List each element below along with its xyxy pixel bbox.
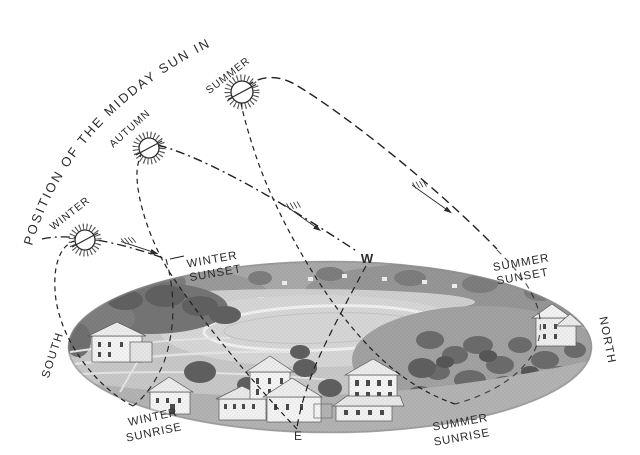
winter-sun-icon	[72, 227, 99, 254]
winter-sunset-leader	[170, 256, 184, 259]
winter-sunrise-label: WINTERSUNRISE	[122, 406, 183, 444]
motion-arrows	[121, 181, 452, 255]
compass-south-label: SOUTH	[40, 331, 66, 380]
summer-arc-setting	[236, 78, 497, 249]
engraving-page: POSITION OF THE MIDDAY SUN IN WINTER AUT…	[0, 0, 640, 455]
compass-east-label: E	[294, 429, 302, 443]
sun-position-diagram: POSITION OF THE MIDDAY SUN IN WINTER AUT…	[0, 0, 640, 455]
landscape-photo	[0, 0, 640, 455]
sun-icons	[72, 78, 257, 254]
winter-arc-setting	[42, 237, 166, 259]
compass-west-label: W	[361, 251, 374, 266]
autumn-sun-icon	[136, 135, 163, 162]
winter-sun-label: WINTER	[48, 194, 93, 233]
summer-sunset-label: SUMMERSUNSET	[492, 252, 553, 288]
compass-north-label: NORTH	[596, 316, 617, 366]
feathered-arrow-icon-summer	[412, 181, 452, 214]
autumn-arc-setting	[158, 145, 358, 252]
feathered-arrow-icon-autumn	[286, 202, 321, 231]
